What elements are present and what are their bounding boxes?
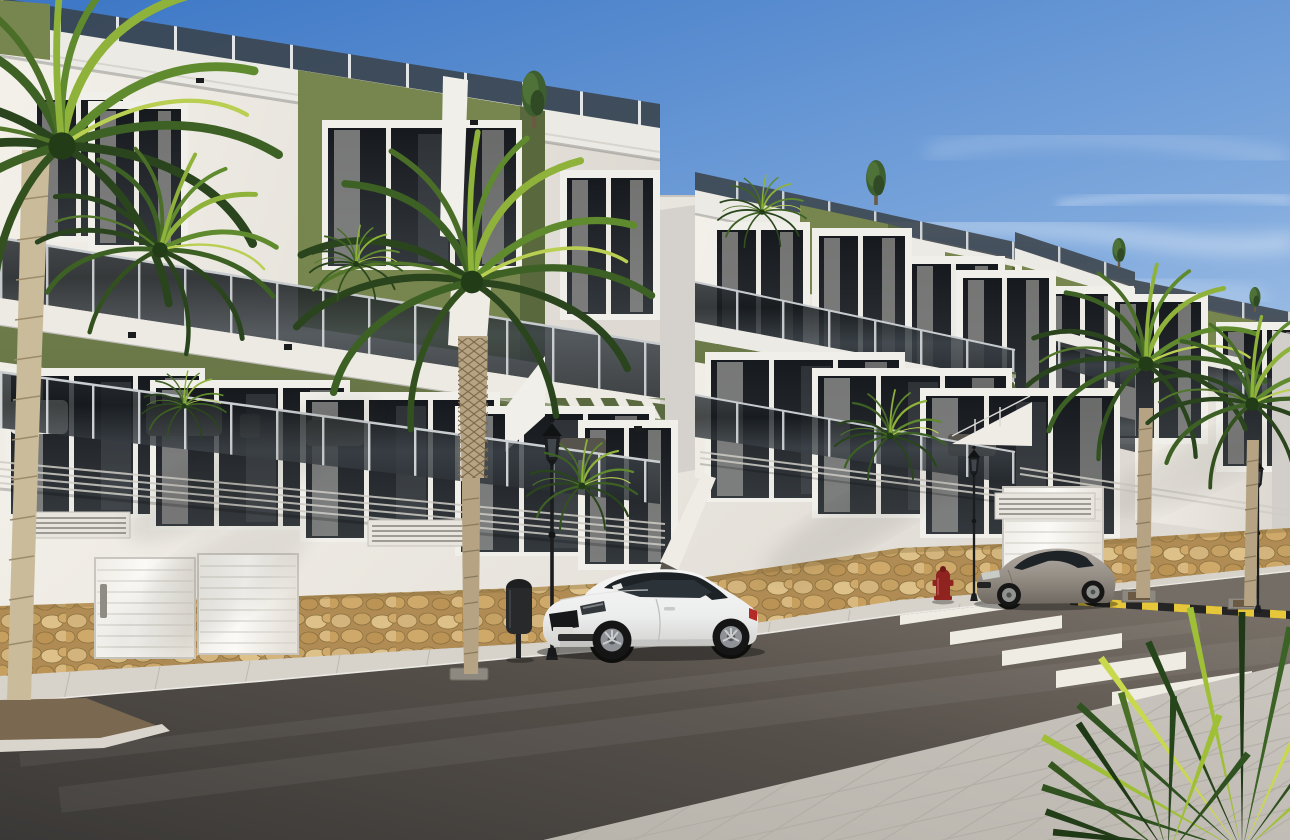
vent-grille (995, 493, 1095, 519)
rear-wheel (713, 619, 750, 656)
front-wheel (997, 583, 1021, 607)
front-wheel (593, 621, 632, 660)
door-handle (100, 584, 107, 618)
window (560, 170, 660, 320)
trunk-texture (458, 338, 488, 478)
rear-wheel (1082, 581, 1105, 604)
architectural-render (0, 0, 1290, 840)
palm-trunk (1136, 408, 1153, 598)
vent-grille (30, 512, 130, 538)
license-plate (553, 627, 573, 635)
scene-canvas (0, 0, 1290, 840)
vent-grille (368, 520, 468, 546)
